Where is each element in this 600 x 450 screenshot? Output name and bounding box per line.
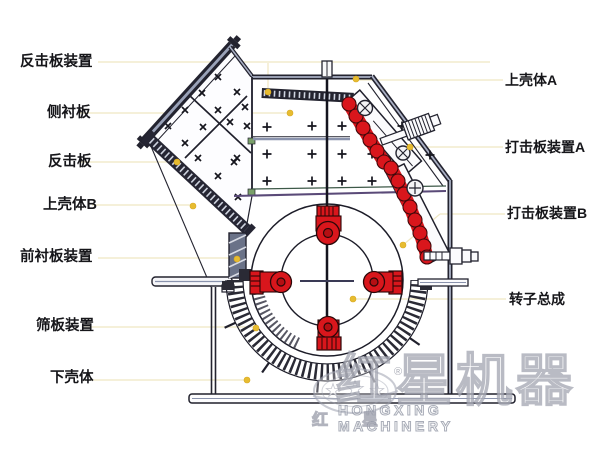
label-upper-casing-a: 上壳体A <box>505 73 557 88</box>
base-plate <box>189 394 515 403</box>
dot-impact-plate <box>174 159 180 165</box>
blow-bar-assembly-b <box>384 161 478 264</box>
label-front-liner-assembly: 前衬板装置 <box>20 250 93 265</box>
dot-impact-plate-assembly <box>265 89 271 95</box>
label-lower-casing: 下壳体 <box>50 371 94 386</box>
label-blow-bar-assembly-b: 打击板装置B <box>507 206 587 221</box>
dot-upper-casing-b <box>190 203 196 209</box>
dot-blow-bar-b <box>400 242 406 248</box>
label-rotor-assembly: 转子总成 <box>509 292 565 307</box>
dot-lower-casing <box>244 377 250 383</box>
front-liner-plate <box>229 233 252 281</box>
label-blow-bar-assembly-a: 打击板装置A <box>505 140 585 155</box>
dot-side-liner-plate <box>287 110 293 116</box>
dot-blow-bar-a <box>407 144 413 150</box>
plate-b-bolt <box>407 180 423 196</box>
diagram-stage: 反击板装置 侧衬板 反击板 上壳体B 前衬板装置 筛板装置 下壳体 上壳体A 打… <box>0 0 600 450</box>
label-upper-casing-b: 上壳体B <box>43 198 97 213</box>
machine-drawing <box>133 32 515 403</box>
rotor-hammer-bottom <box>317 317 341 351</box>
rotor-shaft-stub <box>418 279 468 286</box>
label-impact-plate: 反击板 <box>48 155 92 170</box>
rotor-hammer-top <box>316 206 341 245</box>
dot-upper-casing-a <box>353 76 359 82</box>
rotor-hammer-right <box>364 271 403 294</box>
left-support-arm <box>152 277 234 292</box>
label-sieve-plate-assembly: 筛板装置 <box>36 319 94 334</box>
plate-a-bolt-1 <box>358 101 373 116</box>
label-impact-plate-assembly: 反击板装置 <box>20 55 93 70</box>
dot-front-liner-assembly <box>234 256 240 262</box>
leader-lines <box>80 62 506 380</box>
chain-curtain <box>261 88 353 103</box>
dot-sieve-plate-assembly <box>253 325 259 331</box>
rotor-hammer-left <box>250 271 292 294</box>
left-support-leg <box>212 287 216 395</box>
label-side-liner-plate: 侧衬板 <box>47 106 91 121</box>
top-bolt-stub <box>322 61 332 77</box>
dot-rotor-assembly <box>350 296 356 302</box>
